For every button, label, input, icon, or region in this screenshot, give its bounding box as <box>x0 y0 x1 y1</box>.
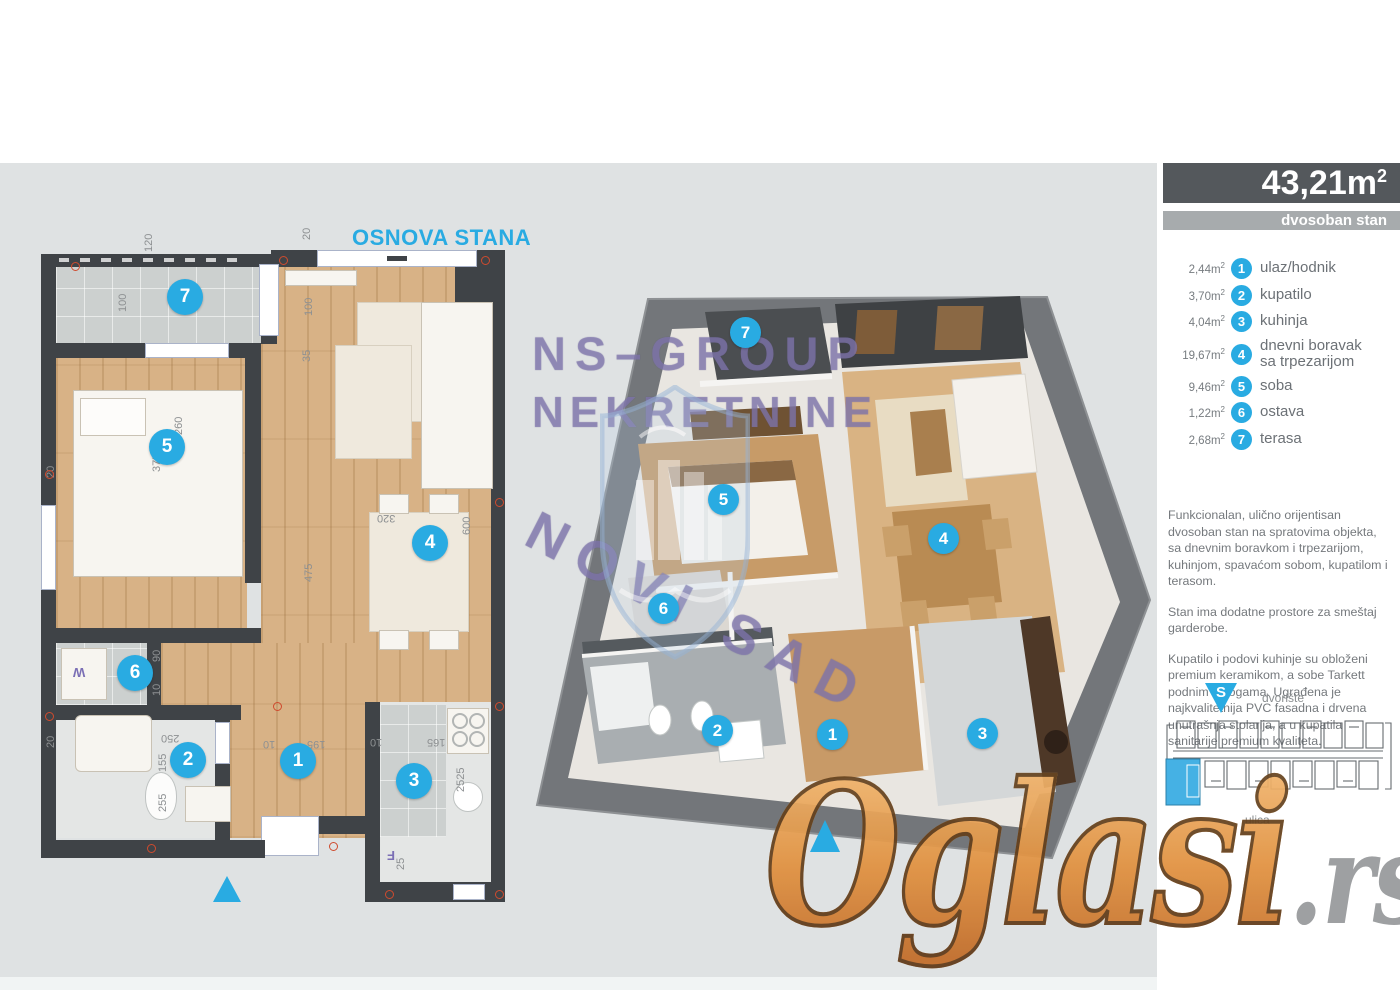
room-number-badge: 3 <box>1231 311 1252 332</box>
entrance-gap <box>261 816 319 856</box>
dim-anchor <box>481 256 490 265</box>
room-circle-4: 4 <box>412 525 448 561</box>
dim-anchor <box>495 498 504 507</box>
wall-segment <box>41 628 261 643</box>
list-item: 1,22m2 6 ostava <box>1167 399 1393 425</box>
terrace-floor <box>56 267 261 345</box>
room-circle-2: 2 <box>170 742 206 778</box>
plan-title: OSNOVA STANA <box>352 225 531 251</box>
stove-burner <box>469 713 485 729</box>
room-label: terasa <box>1260 431 1302 448</box>
dim-label: 255 <box>157 794 169 812</box>
dim-label: 100 <box>117 294 129 312</box>
total-area-value: 43,21m <box>1262 164 1377 203</box>
dim-anchor <box>385 890 394 899</box>
terrace-rail <box>59 258 239 262</box>
dim-label: 10 <box>263 738 275 750</box>
dim-label: 250 <box>161 732 179 744</box>
bedroom-window <box>41 505 56 590</box>
dim-anchor <box>495 890 504 899</box>
agency-watermark-line1: NS–GROUP <box>532 326 868 381</box>
apartment-type-label: dvosoban stan <box>1281 212 1387 229</box>
room-area: 19,67m2 <box>1167 347 1225 362</box>
dim-label: 2525 <box>455 768 467 792</box>
dim-label: 20 <box>301 228 313 240</box>
dim-label: 120 <box>143 234 155 252</box>
dim-label: 90 <box>151 650 163 662</box>
dim-label: 20 <box>45 736 57 748</box>
room-circle-3: 3 <box>396 763 432 799</box>
chair <box>429 494 459 514</box>
room-number-badge: 6 <box>1231 402 1252 423</box>
room-area: 2,44m2 <box>1167 261 1225 276</box>
portal-name: Oglasi <box>765 740 1289 969</box>
room-number-badge: 2 <box>1231 285 1252 306</box>
apartment-type-bar: dvosoban stan <box>1163 211 1400 230</box>
room-number-badge: 7 <box>1231 429 1252 450</box>
dim-anchor <box>329 842 338 851</box>
list-item: 19,67m2 4 dnevni boravaksa trpezarijom <box>1167 335 1393 373</box>
dim-anchor <box>45 712 54 721</box>
dim-label: 10 <box>151 684 163 696</box>
list-item: 2,44m2 1 ulaz/hodnik <box>1167 255 1393 282</box>
room-circle-3d-6: 6 <box>648 593 679 624</box>
room-circle-3d-2: 2 <box>702 715 733 746</box>
description-paragraph: Stan ima dodatne prostore za smeštaj gar… <box>1168 604 1392 637</box>
room-number-badge: 4 <box>1231 344 1252 365</box>
entrance-arrow-2d <box>213 876 241 902</box>
room-number-badge: 1 <box>1231 258 1252 279</box>
room-circle-3d-4: 4 <box>928 523 959 554</box>
hall-floor <box>161 643 365 705</box>
dim-anchor <box>45 470 54 479</box>
room-circle-3d-7: 7 <box>730 317 761 348</box>
total-area-bar: 43,21m2 <box>1163 163 1400 203</box>
sofa <box>421 302 493 489</box>
bathtub <box>75 715 152 772</box>
bath-sink <box>185 786 231 822</box>
sideboard <box>285 270 357 286</box>
room-label: ulaz/hodnik <box>1260 260 1336 277</box>
room-area: 4,04m2 <box>1167 314 1225 329</box>
stove-burner <box>452 713 468 729</box>
courtyard-label: dvorište <box>1262 691 1304 705</box>
room-circle-6: 6 <box>117 655 153 691</box>
chair <box>379 630 409 650</box>
area-superscript: 2 <box>1377 166 1387 187</box>
wall-segment <box>491 250 505 902</box>
dim-label: 165 <box>427 736 445 748</box>
wall-segment <box>245 343 261 583</box>
pillow <box>80 398 146 436</box>
dim-anchor <box>273 702 282 711</box>
bottom-strip <box>0 977 1157 990</box>
wall-segment <box>365 702 380 836</box>
room-circle-1: 1 <box>280 743 316 779</box>
room-circle-7: 7 <box>167 279 203 315</box>
room-list: 2,44m2 1 ulaz/hodnik 3,70m2 2 kupatilo 4… <box>1167 255 1393 454</box>
dim-label: 600 <box>461 517 473 535</box>
terrace-door <box>259 264 279 336</box>
dim-label: 10 <box>370 736 382 748</box>
room-number-badge: 5 <box>1231 376 1252 397</box>
room-area: 3,70m2 <box>1167 288 1225 303</box>
room-area: 9,46m2 <box>1167 379 1225 394</box>
room-circle-5: 5 <box>149 429 185 465</box>
description-paragraph: Funkcionalan, ulično orijentisan dvosoba… <box>1168 507 1392 590</box>
list-item: 9,46m2 5 soba <box>1167 373 1393 399</box>
room-label: dnevni boravaksa trpezarijom <box>1260 338 1362 371</box>
dim-label: 155 <box>157 754 169 772</box>
dim-label: 35 <box>301 350 313 362</box>
dim-label: 475 <box>303 564 315 582</box>
list-item: 2,68m2 7 terasa <box>1167 425 1393 454</box>
dim-anchor <box>147 844 156 853</box>
list-item: 3,70m2 2 kupatilo <box>1167 282 1393 308</box>
room-label: kupatilo <box>1260 287 1312 304</box>
bath-door <box>215 722 230 764</box>
room-circle-3d-5: 5 <box>708 484 739 515</box>
room-label: ostava <box>1260 404 1304 421</box>
rug <box>335 345 412 459</box>
room-area: 1,22m2 <box>1167 405 1225 420</box>
dim-anchor <box>279 256 288 265</box>
terrace-window <box>145 343 229 358</box>
stove-burner <box>469 731 485 747</box>
chair <box>379 494 409 514</box>
dim-anchor <box>495 702 504 711</box>
dim-label: 320 <box>377 512 395 524</box>
portal-tld: .rs <box>1289 807 1400 953</box>
dim-label: 25 <box>395 858 407 870</box>
stove-burner <box>452 731 468 747</box>
floor-plan-2d: 7 5 4 6 2 1 3 120 20 100 100 35 260 375 … <box>35 250 515 912</box>
portal-watermark: Oglasi.rs <box>765 757 1400 952</box>
kitchen-window <box>453 884 485 900</box>
list-item: 4,04m2 3 kuhinja <box>1167 308 1393 335</box>
listing-image: OSNOVA STANA <box>0 0 1400 990</box>
chair <box>429 630 459 650</box>
wall-segment <box>387 256 407 261</box>
dim-anchor <box>71 262 80 271</box>
room-label: kuhinja <box>1260 313 1308 330</box>
washer-label: W <box>73 665 85 680</box>
dim-label: 100 <box>303 298 315 316</box>
fridge-label: F <box>387 848 395 863</box>
room-label: soba <box>1260 378 1293 395</box>
room-area: 2,68m2 <box>1167 432 1225 447</box>
